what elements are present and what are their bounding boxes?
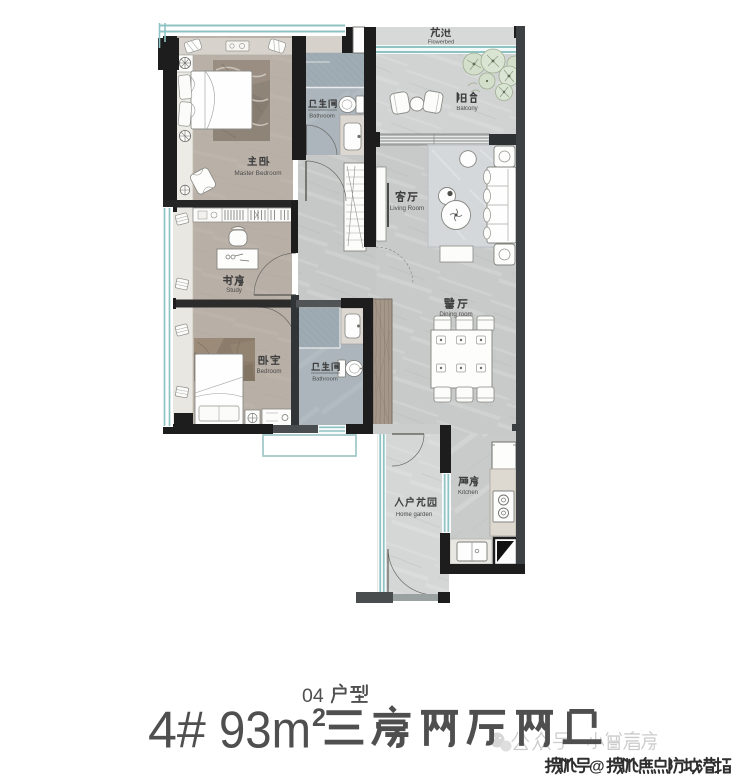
svg-text:@: @: [589, 759, 605, 776]
svg-text:Dining room: Dining room: [439, 311, 472, 318]
svg-text:Study: Study: [226, 287, 243, 294]
svg-text:Bedroom: Bedroom: [256, 368, 281, 375]
svg-text:Living Room: Living Room: [390, 205, 424, 212]
svg-text:Balcony: Balcony: [456, 106, 477, 112]
svg-text:Bathroom: Bathroom: [312, 377, 338, 383]
svg-text:4#: 4#: [148, 702, 206, 760]
svg-text:2: 2: [312, 704, 326, 732]
svg-text:Home garden: Home garden: [396, 512, 432, 518]
svg-text:Kitchen: Kitchen: [458, 490, 478, 496]
svg-text:93m: 93m: [219, 702, 311, 760]
svg-text:Flowerbed: Flowerbed: [428, 40, 455, 46]
svg-text:Bathroom: Bathroom: [309, 114, 335, 120]
svg-text:Master Bedroom: Master Bedroom: [234, 170, 281, 177]
